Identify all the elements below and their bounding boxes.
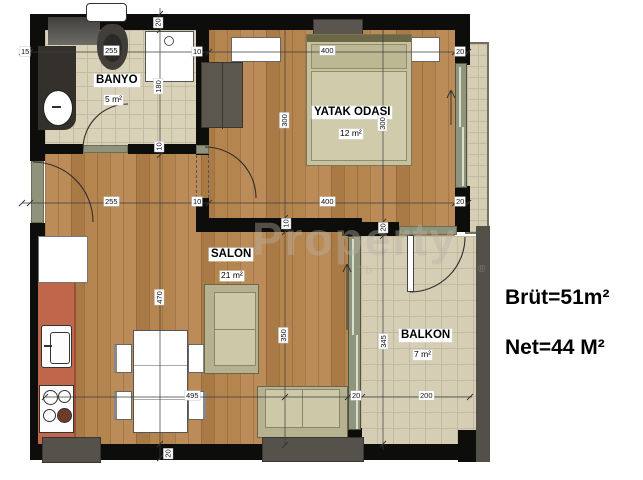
dim-label: 345 [379,334,388,349]
window-pane [462,127,464,186]
burner-icon [58,390,71,403]
dim-label: 20 [455,197,465,206]
nightstand-left [231,37,281,62]
dim-label: 10 [155,141,164,151]
room-area-salon: 21 m² [220,271,244,281]
exterior-block [42,437,101,463]
room-area-yatak-odasi: 12 m² [339,129,363,139]
dim-label: 300 [280,113,289,128]
toilet-tank [86,3,127,22]
dining-table [133,330,188,433]
balcony-door-threshold [399,226,457,235]
table-divider [134,365,187,366]
dim-label: 10 [192,197,202,206]
room-label-salon: SALON [209,248,253,261]
stove [39,385,74,433]
dim-label: 255 [104,46,119,55]
dim-label: 400 [320,46,335,55]
tv-unit [262,437,364,462]
balcony-door-leaf [407,235,414,292]
kitchen-faucet-icon [44,345,52,347]
sink-faucet-icon [52,106,61,108]
shower-drain-icon [164,36,174,46]
dim-label: 495 [185,391,200,400]
dim-label: 180 [154,79,163,94]
wall-balcony-top [342,222,399,236]
dim-label: 350 [279,328,288,343]
room-label-balkon: BALKON [399,329,452,342]
floor-plan-page: Property ть ® [0,0,643,480]
bedroom-wardrobe [201,62,243,128]
chair [114,391,132,420]
dim-label: 20 [379,222,388,232]
burner-icon [43,390,58,405]
room-area-balkon: 7 m² [413,350,432,360]
sofa-seat-divider [214,329,256,330]
dim-label: 20 [154,17,163,27]
hall-threshold [196,145,209,154]
wardrobe-divider [222,63,223,129]
salon-balcony-window [348,236,361,430]
dim-label: 200 [419,391,434,400]
dim-label: 15 [20,47,30,56]
window-pane [356,335,358,429]
bed-headboard [307,35,411,42]
sofa-horizontal [257,386,348,438]
gross-area-text: Brüt=51m² [505,286,609,310]
wall-right-mid [455,186,470,232]
dim-label: 10 [192,47,202,56]
sofa-seat-divider [302,389,303,428]
burner-icon [43,409,56,422]
table-divider [134,399,187,400]
burner-icon [57,408,72,423]
kitchen-sink-basin [50,332,70,364]
room-label-banyo: BANYO [94,74,140,87]
bathroom-door-threshold [83,145,128,153]
wall-bathroom-bottom-left [45,144,83,154]
dim-label: 20 [455,47,465,56]
bedroom-door-opening [196,155,209,198]
wall-balcony-corner [458,430,478,462]
sofa-vertical [204,284,259,374]
dim-label: 470 [155,290,164,305]
entrance-door-leaf [31,161,44,223]
kitchen-sink [41,325,72,368]
net-area-text: Net=44 M² [505,336,605,360]
fridge [38,236,88,283]
chair [114,344,132,373]
dim-label: 20 [164,448,173,458]
bathroom-sink [43,90,73,126]
dim-label: 255 [104,197,119,206]
dim-label: 300 [378,116,387,131]
bedroom-window [455,63,467,188]
window-pane [459,67,461,127]
wall-right-top [455,14,470,65]
room-area-banyo: 5 m² [104,95,123,105]
dim-label: 10 [282,218,291,228]
window-pane [352,239,354,335]
dim-label: 20 [351,391,361,400]
dim-label: 400 [320,197,335,206]
wall-balcony-right [476,226,490,462]
